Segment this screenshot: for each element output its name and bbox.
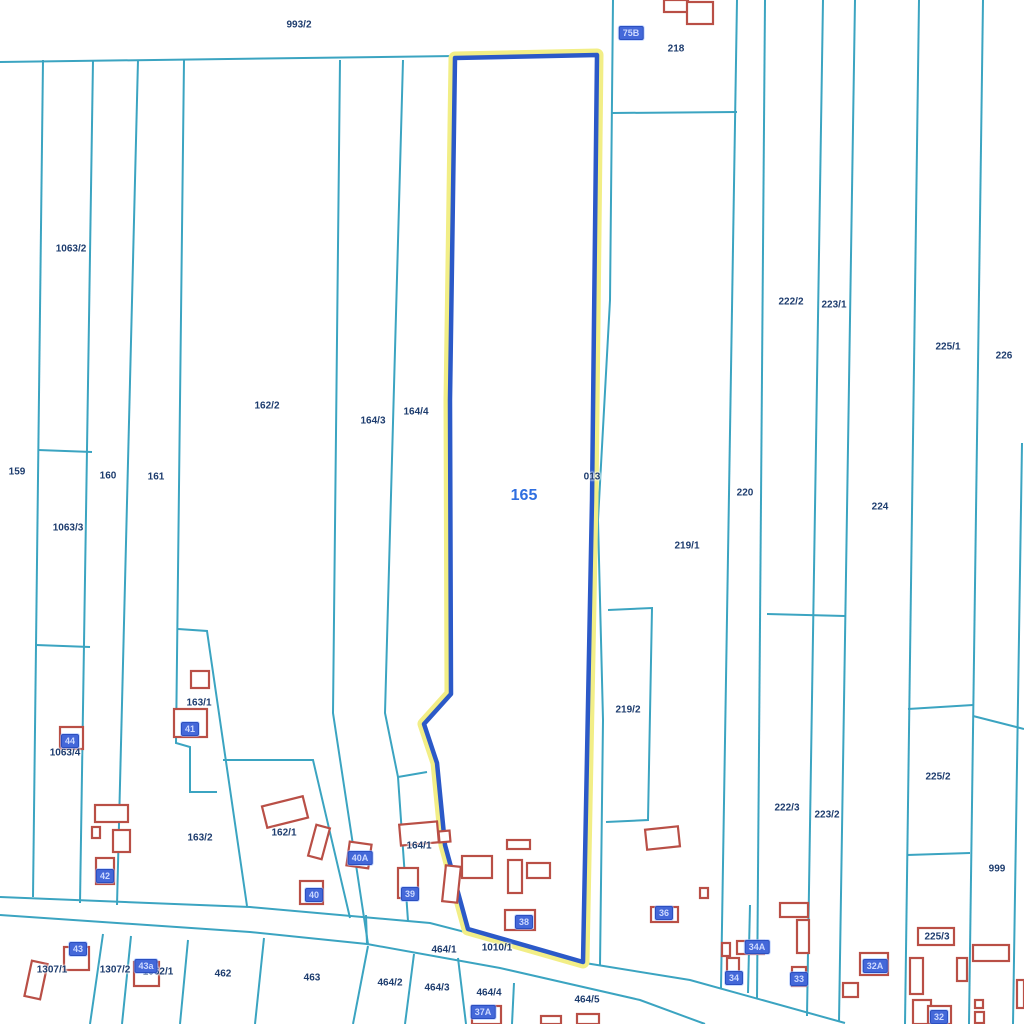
parcel-boundary-line <box>767 614 845 616</box>
parcel-label-224: 224 <box>872 502 889 513</box>
building-footprint <box>462 856 492 878</box>
parcel-label-223-1: 223/1 <box>821 300 846 311</box>
parcel-label-163-2: 163/2 <box>187 833 212 844</box>
parcel-label-162-1: 162/1 <box>271 828 296 839</box>
building-footprint <box>700 888 708 898</box>
parcel-label-464-3: 464/3 <box>424 983 449 994</box>
building-footprint <box>973 945 1009 961</box>
parcel-label-463: 463 <box>304 973 321 984</box>
parcel-label-163-1: 163/1 <box>186 698 211 709</box>
parcel-label-1063-4: 1063/4 <box>50 748 81 759</box>
parcel-boundary-line <box>973 716 1024 729</box>
parcel-label-160: 160 <box>100 471 117 482</box>
building-footprint <box>780 903 808 917</box>
parcel-label-159: 159 <box>9 467 26 478</box>
building-number-label-40: 40 <box>305 888 323 902</box>
building-footprint <box>645 826 680 849</box>
parcel-boundary-line <box>807 0 823 1016</box>
building-number-label-43: 43 <box>69 942 87 956</box>
building-footprint <box>442 865 461 902</box>
parcel-label-464-5: 464/5 <box>574 995 599 1006</box>
parcel-label-462: 462 <box>215 969 232 980</box>
parcel-label-225-1: 225/1 <box>935 342 960 353</box>
parcel-boundary-line <box>512 983 514 1024</box>
parcel-boundary-line <box>1013 443 1022 1024</box>
building-footprint <box>1017 980 1024 1008</box>
parcel-layer <box>0 0 1024 1024</box>
building-number-label-34: 34 <box>725 971 743 985</box>
building-footprint <box>910 958 923 994</box>
parcel-boundary-line <box>80 60 93 903</box>
parcel-label-225-3: 225/3 <box>924 932 949 943</box>
parcel-boundary-line <box>366 915 367 944</box>
building-footprint <box>843 983 858 997</box>
building-footprint <box>664 0 688 12</box>
parcel-boundary-line <box>757 0 765 999</box>
parcel-label-993-2: 993/2 <box>286 20 311 31</box>
building-footprint <box>722 943 730 956</box>
building-number-label-32: 32 <box>930 1010 948 1024</box>
parcel-label-464-1: 464/1 <box>431 945 456 956</box>
building-number-label-39: 39 <box>401 887 419 901</box>
parcel-boundary-line <box>839 0 855 1022</box>
building-footprint <box>687 2 713 24</box>
building-number-label-44: 44 <box>61 734 79 748</box>
parcel-label-1063-3: 1063/3 <box>53 523 84 534</box>
building-footprint <box>262 796 308 828</box>
building-footprint <box>577 1014 599 1024</box>
parcel-boundary-line <box>38 450 92 452</box>
parcel-label-1010-1: 1010/1 <box>482 943 513 954</box>
parcel-label-220: 220 <box>737 488 754 499</box>
parcel-label-223-2: 223/2 <box>814 810 839 821</box>
building-footprint <box>957 958 967 981</box>
parcel-boundary-line <box>905 0 919 1024</box>
parcel-label-161: 161 <box>148 472 165 483</box>
building-footprint <box>439 831 451 843</box>
parcel-label-218: 218 <box>668 44 685 55</box>
building-footprint <box>92 827 100 838</box>
parcel-label-1307-1: 1307/1 <box>37 965 68 976</box>
parcel-boundary-line <box>33 60 43 897</box>
building-number-label-41: 41 <box>181 722 199 736</box>
parcel-boundary-line <box>0 56 455 62</box>
parcel-label-225-2: 225/2 <box>925 772 950 783</box>
parcel-boundary-line <box>180 940 188 1024</box>
parcel-boundary-line <box>969 0 983 1024</box>
building-footprint <box>975 1012 984 1023</box>
parcel-label-164-1: 164/1 <box>406 841 431 852</box>
parcel-boundary-line <box>907 853 970 855</box>
parcel-label-222-2: 222/2 <box>778 297 803 308</box>
building-footprint <box>541 1016 561 1024</box>
building-number-label-34A: 34A <box>745 940 770 954</box>
parcel-boundary-line <box>612 112 737 113</box>
building-footprint <box>191 671 209 688</box>
parcel-label-1063-2: 1063/2 <box>56 244 87 255</box>
building-number-label-75B: 75B <box>619 26 644 40</box>
parcel-label-219-1: 219/1 <box>674 541 699 552</box>
selected-parcel-label-165[interactable]: 165 <box>511 487 538 505</box>
parcel-boundary-line <box>122 936 131 1024</box>
parcel-boundary-line <box>117 60 138 905</box>
building-footprint <box>95 805 128 822</box>
parcel-boundary-line <box>398 772 427 777</box>
parcel-label-164-3: 164/3 <box>360 416 385 427</box>
parcel-boundary-line <box>178 629 247 906</box>
building-footprint <box>975 1000 983 1008</box>
parcel-label-222-3: 222/3 <box>774 803 799 814</box>
building-number-label-32A: 32A <box>863 959 888 973</box>
building-number-label-33: 33 <box>790 972 808 986</box>
parcel-boundary-line <box>36 645 90 647</box>
parcel-label-164-4: 164/4 <box>403 407 428 418</box>
parcel-label-464-4: 464/4 <box>476 988 501 999</box>
parcel-boundary-line <box>405 954 414 1024</box>
building-footprint <box>113 830 130 852</box>
building-number-label-36: 36 <box>655 906 673 920</box>
cadastral-map-canvas[interactable]: 993/22181063/2222/2223/1225/1226162/2164… <box>0 0 1024 1024</box>
building-footprint <box>507 840 530 849</box>
building-footprint <box>527 863 550 878</box>
parcel-label-013: 013 <box>584 472 601 483</box>
parcel-boundary-line <box>223 760 350 918</box>
building-number-label-40A: 40A <box>348 851 373 865</box>
parcel-boundary-line <box>255 938 264 1024</box>
parcel-boundary-line <box>721 0 737 988</box>
parcel-boundary-line <box>353 946 368 1024</box>
building-footprint <box>308 825 330 860</box>
parcel-label-1307-2: 1307/2 <box>100 965 131 976</box>
parcel-boundary-line <box>90 934 103 1024</box>
parcel-boundary-line <box>385 60 408 921</box>
building-number-label-42: 42 <box>96 869 114 883</box>
parcel-label-162-2: 162/2 <box>254 401 279 412</box>
parcel-label-226: 226 <box>996 351 1013 362</box>
building-footprint <box>797 920 809 953</box>
building-footprint <box>508 860 522 893</box>
parcel-boundary-line <box>333 60 368 944</box>
parcel-label-219-2: 219/2 <box>615 705 640 716</box>
parcel-boundary-line <box>0 897 845 1023</box>
building-number-label-37A: 37A <box>471 1005 496 1019</box>
parcel-label-464-2: 464/2 <box>377 978 402 989</box>
building-number-label-43a: 43a <box>134 959 157 973</box>
parcel-boundary-line <box>908 705 973 709</box>
parcel-label-999: 999 <box>989 864 1006 875</box>
parcel-boundary-line <box>458 958 466 1024</box>
building-number-label-38: 38 <box>515 915 533 929</box>
